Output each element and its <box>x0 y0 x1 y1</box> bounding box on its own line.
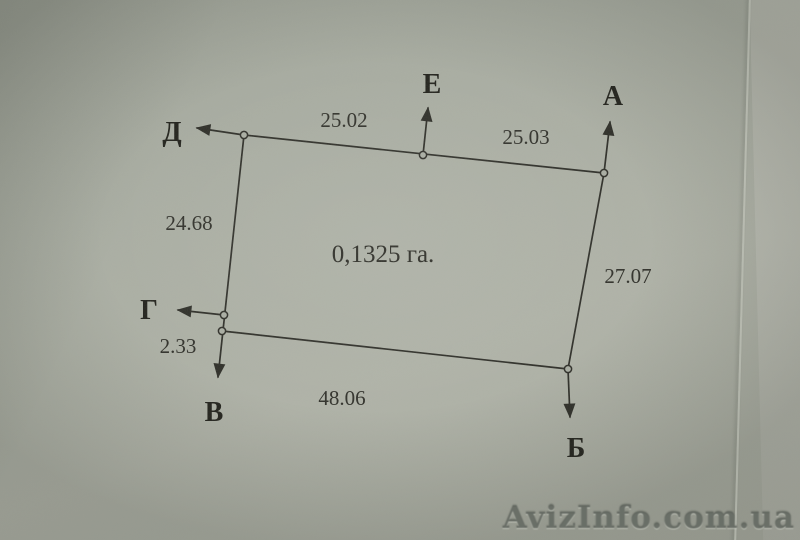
survey-point-b <box>564 365 571 372</box>
survey-point-g <box>220 311 227 318</box>
boundary-left-and-ray-v <box>218 135 244 377</box>
ray-arrow-a <box>604 122 610 173</box>
survey-point-d <box>240 131 247 138</box>
point-label-a: А <box>603 81 624 112</box>
dim-label-a-b: 27.07 <box>604 264 651 288</box>
dim-label-g-v: 2.33 <box>160 334 197 358</box>
dim-label-d-e: 25.02 <box>320 108 367 132</box>
dim-label-e-a: 25.03 <box>502 125 549 149</box>
ray-arrow-e <box>423 108 428 155</box>
point-label-g: Г <box>140 295 158 326</box>
survey-point-v <box>218 327 225 334</box>
land-plot-diagram: Д Е А Г В Б 25.02 25.03 24.68 2.33 48.06… <box>0 0 800 540</box>
ray-arrow-b <box>568 369 570 417</box>
point-label-v: В <box>205 397 224 428</box>
point-label-d: Д <box>162 117 181 148</box>
point-label-e: Е <box>423 69 442 100</box>
ray-arrow-g <box>178 310 224 315</box>
survey-point-a <box>600 169 607 176</box>
watermark: AvizInfo.com.ua <box>503 500 795 536</box>
dim-label-v-b: 48.06 <box>318 386 365 410</box>
dim-label-d-g: 24.68 <box>165 211 212 235</box>
ray-arrow-d <box>197 128 244 135</box>
photo-of-survey-sketch: Д Е А Г В Б 25.02 25.03 24.68 2.33 48.06… <box>0 0 800 540</box>
plot-area-label: 0,1325 га. <box>332 241 435 268</box>
point-label-b: Б <box>567 433 586 464</box>
survey-point-e <box>419 151 426 158</box>
boundary-right <box>568 173 604 369</box>
boundary-bottom <box>222 331 568 369</box>
